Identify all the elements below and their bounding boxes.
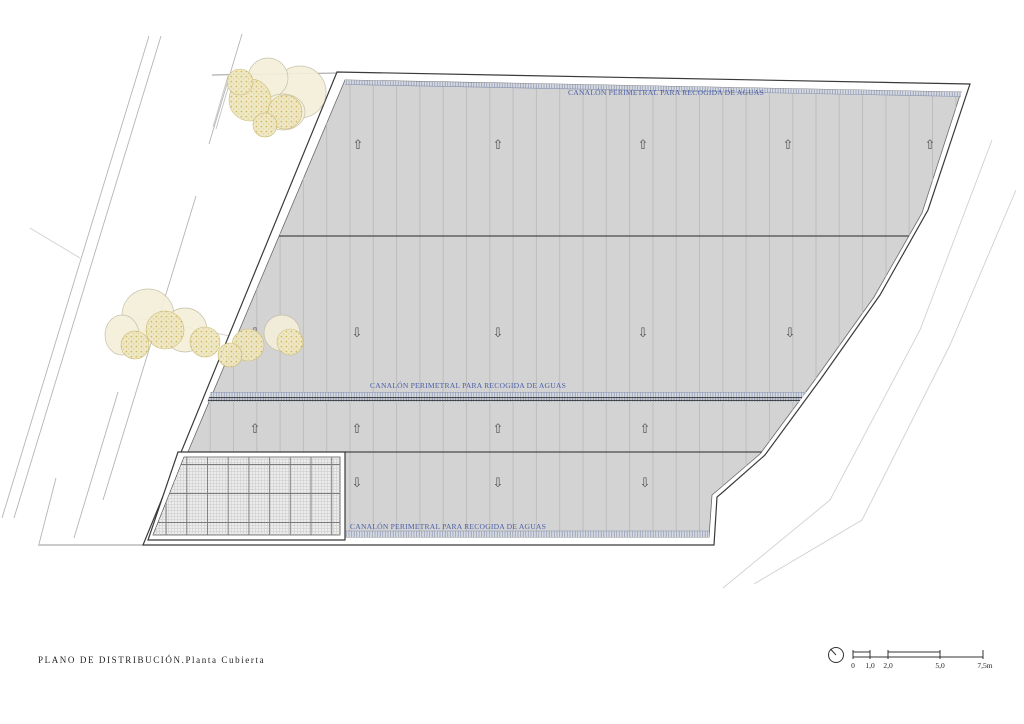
slope-up-arrow-icon: ⇧ bbox=[640, 422, 651, 437]
slope-down-arrow-icon: ⇩ bbox=[785, 326, 796, 341]
scale-tick-label: 5,0 bbox=[935, 661, 945, 670]
slope-up-arrow-icon: ⇧ bbox=[638, 138, 649, 153]
gutter-strip-bottom bbox=[345, 531, 709, 537]
slope-down-arrow-icon: ⇩ bbox=[640, 476, 651, 491]
gutter-strip-middle bbox=[207, 392, 806, 402]
slope-down-arrow-icon: ⇩ bbox=[352, 476, 363, 491]
grid-terrace-area bbox=[148, 452, 345, 540]
roof-plan-drawing: ⇧ ⇧ ⇧ ⇧ ⇧ ⇩ ⇩ ⇩ ⇩ ⇩ ⇧ ⇧ ⇧ ⇧ ⇩ ⇩ ⇩ CANALÓ… bbox=[0, 0, 1024, 724]
slope-up-arrow-icon: ⇧ bbox=[353, 138, 364, 153]
orientation-dial-icon bbox=[829, 648, 844, 663]
scale-tick-label: 1,0 bbox=[865, 661, 875, 670]
gutter-label-bottom: CANALÓN PERIMETRAL PARA RECOGIDA DE AGUA… bbox=[350, 521, 546, 531]
slope-up-arrow-icon: ⇧ bbox=[493, 422, 504, 437]
tree-cluster-top bbox=[227, 58, 326, 137]
slope-down-arrow-icon: ⇩ bbox=[493, 326, 504, 341]
scale-tick-label: 0 bbox=[851, 661, 855, 670]
slope-up-arrow-icon: ⇧ bbox=[493, 138, 504, 153]
slope-up-arrow-icon: ⇧ bbox=[250, 422, 261, 437]
scale-tick-label: 2,0 bbox=[883, 661, 893, 670]
slope-up-arrow-icon: ⇧ bbox=[352, 422, 363, 437]
slope-down-arrow-icon: ⇩ bbox=[638, 326, 649, 341]
scale-tick-label: 7,5m bbox=[977, 661, 992, 670]
slope-up-arrow-icon: ⇧ bbox=[925, 138, 936, 153]
gutter-label-middle: CANALÓN PERIMETRAL PARA RECOGIDA DE AGUA… bbox=[370, 380, 566, 390]
slope-down-arrow-icon: ⇩ bbox=[352, 326, 363, 341]
slope-up-arrow-icon: ⇧ bbox=[783, 138, 794, 153]
drawing-title: PLANO DE DISTRIBUCIÓN.Planta Cubierta bbox=[38, 655, 265, 665]
scale-bar: 0 1,0 2,0 5,0 7,5m bbox=[851, 650, 993, 670]
slope-down-arrow-icon: ⇩ bbox=[493, 476, 504, 491]
gutter-label-top: CANALÓN PERIMETRAL PARA RECOGIDA DE AGUA… bbox=[568, 87, 764, 97]
